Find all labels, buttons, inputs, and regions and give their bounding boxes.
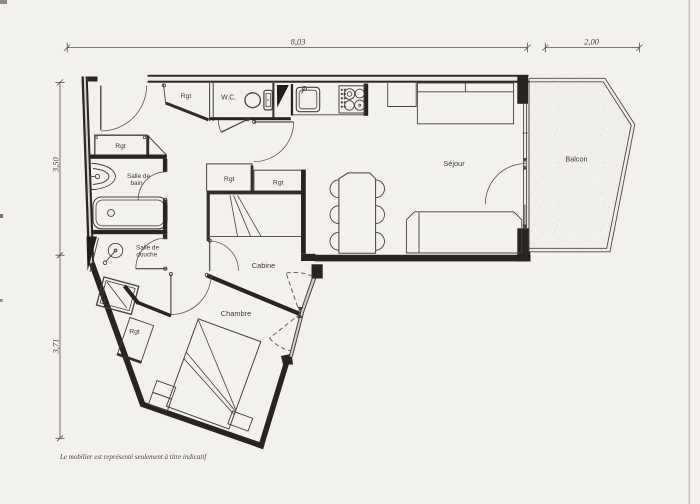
svg-text:2,00: 2,00 [584,37,600,47]
svg-text:Rgt: Rgt [129,329,140,336]
svg-text:Rgt: Rgt [115,143,126,150]
svg-text:8,03: 8,03 [291,37,306,47]
svg-text:Chambre: Chambre [221,309,251,318]
svg-text:bain: bain [130,180,143,187]
svg-text:Salle de: Salle de [136,245,160,252]
svg-text:3,71: 3,71 [50,339,60,355]
svg-text:douche: douche [136,252,157,259]
svg-text:Cabine: Cabine [252,261,275,270]
svg-text:Le mobilier est représenté seu: Le mobilier est représenté seulement à t… [59,453,207,461]
svg-text:Rgt: Rgt [224,176,235,183]
svg-text:W.C.: W.C. [221,95,236,102]
svg-text:Rgt: Rgt [273,180,284,187]
svg-text:3,50: 3,50 [50,157,60,174]
svg-text:Balcon: Balcon [566,155,588,164]
svg-text:Séjour: Séjour [443,159,465,168]
svg-text:Rgt: Rgt [181,93,192,100]
